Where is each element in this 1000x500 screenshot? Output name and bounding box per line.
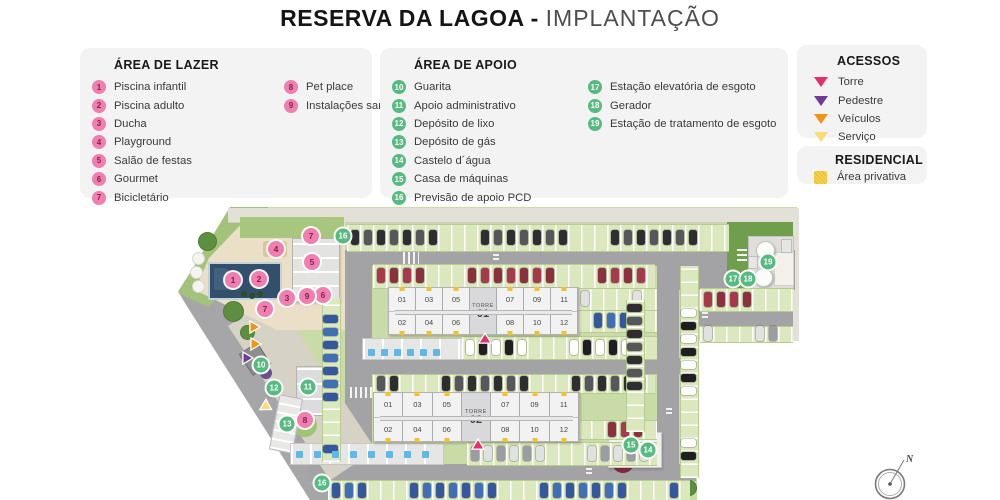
legend-item: 7Bicicletário [92, 188, 222, 206]
legend-item-number: 11 [392, 99, 406, 113]
legend-item-label: Bicicletário [114, 192, 169, 204]
car [650, 230, 658, 245]
car [540, 483, 548, 498]
palm-tree [249, 293, 255, 299]
legend-residencial-items: Área privativa [814, 168, 924, 186]
car [594, 313, 602, 328]
map-marker-11: 11 [301, 380, 316, 395]
car [510, 446, 518, 461]
car [377, 230, 385, 245]
car [553, 483, 561, 498]
car [624, 230, 632, 245]
car [455, 376, 463, 391]
car [442, 376, 450, 391]
car [611, 230, 619, 245]
unit-door [415, 392, 420, 396]
unit-door [386, 438, 391, 442]
car [520, 268, 528, 283]
legend-item-number: 9 [284, 99, 298, 113]
car [416, 268, 424, 283]
legend-card-residencial: RESIDENCIAL Área privativa [797, 146, 927, 184]
car [323, 380, 338, 388]
legend-item-label: Guarita [414, 81, 451, 93]
car [364, 230, 372, 245]
car [583, 340, 591, 355]
pcd-parking-mark [368, 451, 375, 458]
tower-unit: 05 [443, 288, 469, 312]
legend-item: 12Depósito de lixo [392, 115, 582, 133]
unit-door [427, 331, 432, 335]
car [624, 268, 632, 283]
crosswalk [403, 251, 419, 264]
car [536, 446, 544, 461]
unit-door [508, 287, 513, 291]
legend-title-lazer: ÁREA DE LAZER [114, 58, 219, 72]
parking-row [578, 420, 657, 440]
legend-item-number: 3 [92, 117, 106, 131]
map-marker-6: 6 [315, 287, 331, 303]
pcd-parking-mark [314, 451, 321, 458]
legend-item-label: Piscina infantil [114, 81, 186, 93]
parking-row [328, 480, 690, 500]
legend-item-label: Pet place [306, 81, 353, 93]
pcd-parking-mark [350, 451, 357, 458]
pedestre-arrow-icon [814, 96, 828, 106]
car [488, 483, 496, 498]
unit-door [532, 392, 537, 396]
pcd-parking-mark [296, 451, 303, 458]
unit-door [535, 287, 540, 291]
pcd-parking-mark [394, 349, 401, 356]
tower-unit: 07 [497, 288, 523, 312]
unit-door [400, 331, 405, 335]
servico-arrow-icon [814, 132, 828, 142]
pcd-parking-mark [422, 451, 429, 458]
unit-door [400, 287, 405, 291]
legend-access-item: Torre [814, 73, 924, 91]
unit-door [427, 287, 432, 291]
treatment-building [774, 252, 794, 286]
car [507, 376, 515, 391]
tree [223, 301, 244, 322]
legend-card-acessos: ACESSOS TorrePedestreVeículosServiço [797, 45, 927, 138]
legend-apoio-column-1: 10Guarita11Apoio administrativo12Depósit… [392, 78, 582, 207]
car [572, 376, 580, 391]
legend-item: 4Playground [92, 133, 222, 151]
map-marker-14: 14 [641, 443, 656, 458]
legend-access-label: Serviço [838, 131, 876, 143]
legend-item-label: Estação de tratamento de esgoto [610, 118, 776, 130]
legend-item-number: 17 [588, 80, 602, 94]
car [449, 483, 457, 498]
unit-door [454, 287, 459, 291]
car [717, 292, 725, 307]
car [351, 230, 359, 245]
legend-item-number: 15 [392, 172, 406, 186]
map-marker-7: 7 [257, 301, 273, 317]
legend-item-number: 2 [92, 99, 106, 113]
car [756, 326, 764, 341]
car [627, 369, 642, 377]
legend-item-number: 16 [392, 191, 406, 205]
car [484, 446, 492, 461]
unit-door [532, 438, 537, 442]
car [332, 483, 340, 498]
road-marking [493, 254, 499, 256]
car [533, 230, 541, 245]
car [681, 322, 696, 330]
road-marking [702, 312, 708, 314]
car [614, 446, 622, 461]
legend-item: 2Piscina adulto [92, 96, 222, 114]
legend-access-label: Veículos [838, 113, 881, 125]
map-marker-18: 18 [741, 272, 756, 287]
generator-box [748, 256, 758, 269]
legend-item-label: Playground [114, 136, 171, 148]
car [663, 230, 671, 245]
legend-access-item: Serviço [814, 128, 924, 146]
tower-unit: 01 [389, 288, 415, 312]
svg-text:N: N [905, 454, 914, 465]
legend-item: 18Gerador [588, 96, 788, 114]
unit-door [535, 331, 540, 335]
legend-item-label: Estação elevatória de esgoto [610, 81, 756, 93]
unit-door [562, 287, 567, 291]
legend-item: 6Gourmet [92, 170, 222, 188]
car [416, 230, 424, 245]
legend-item: 16Previsão de apoio PCD [392, 188, 582, 206]
map-marker-13: 13 [280, 417, 295, 432]
car [681, 387, 696, 395]
car [481, 376, 489, 391]
car [468, 268, 476, 283]
car [475, 483, 483, 498]
car [429, 230, 437, 245]
palm-tree [257, 291, 263, 297]
leisure-lawn [240, 217, 344, 238]
unit-door [386, 392, 391, 396]
plan-type: IMPLANTAÇÃO [546, 5, 720, 31]
legend-item: 17Estação elevatória de esgoto [588, 78, 788, 96]
car [566, 483, 574, 498]
car [546, 268, 554, 283]
map-marker-8: 8 [297, 412, 313, 428]
car [323, 315, 338, 323]
legend-item-number: 19 [588, 117, 602, 131]
car [323, 328, 338, 336]
legend-item-label: Gerador [610, 100, 651, 112]
car [570, 340, 578, 355]
car [581, 291, 589, 306]
map-marker-1: 1 [225, 272, 241, 288]
legend-item-number: 5 [92, 154, 106, 168]
car [637, 268, 645, 283]
map-marker-7: 7 [303, 228, 319, 244]
car [481, 268, 489, 283]
legend-card-apoio: ÁREA DE APOIO 10Guarita11Apoio administr… [380, 48, 788, 198]
legend-access-label: Pedestre [838, 95, 883, 107]
map-marker-3: 3 [279, 290, 295, 306]
project-name: RESERVA DA LAGOA - [280, 5, 546, 31]
legend-residencial-label: Área privativa [837, 171, 906, 183]
unit-door [508, 331, 513, 335]
car [507, 268, 515, 283]
pcd-parking-mark [407, 349, 414, 356]
parking-row [577, 288, 657, 311]
car [627, 304, 642, 312]
map-marker-16: 16 [336, 229, 351, 244]
legend-item-number: 6 [92, 172, 106, 186]
car [585, 376, 593, 391]
car [533, 268, 541, 283]
car [462, 483, 470, 498]
unit-door [444, 438, 449, 442]
unit-door [561, 392, 566, 396]
tree [198, 232, 217, 251]
car [436, 483, 444, 498]
car [494, 268, 502, 283]
car [481, 230, 489, 245]
map-marker-10: 10 [254, 358, 269, 373]
car [627, 356, 642, 364]
compass-north-icon: N [866, 450, 928, 500]
map-marker-9: 9 [299, 288, 315, 304]
car [518, 340, 526, 355]
car [627, 382, 642, 390]
car [627, 317, 642, 325]
legend-access-item: Veículos [814, 110, 924, 128]
legend-item: 10Guarita [392, 78, 582, 96]
map-marker-2: 2 [251, 271, 267, 287]
torre-arrow-icon [814, 77, 828, 87]
map-marker-15: 15 [624, 438, 639, 453]
legend-item-number: 7 [92, 191, 106, 205]
legend-lazer-column-1: 1Piscina infantil2Piscina adulto3Ducha4P… [92, 78, 222, 207]
car [611, 376, 619, 391]
car [468, 376, 476, 391]
legend-item-number: 13 [392, 135, 406, 149]
unit-door [562, 331, 567, 335]
tower-unit: 11 [550, 393, 578, 418]
legend-item-number: 8 [284, 80, 298, 94]
legend-item-label: Gourmet [114, 173, 158, 185]
legend-item: 19Estação de tratamento de esgoto [588, 115, 788, 133]
car [466, 340, 474, 355]
legend-residencial-item: Área privativa [814, 168, 924, 186]
tower-unit: 01 [374, 393, 402, 418]
page-title: RESERVA DA LAGOA - IMPLANTAÇÃO [0, 5, 1000, 32]
legend-item-label: Depósito de gás [414, 136, 496, 148]
legend-item-number: 4 [92, 135, 106, 149]
palm-tree [241, 291, 247, 297]
car [505, 340, 513, 355]
road-marking [586, 468, 592, 470]
unit-door [503, 392, 508, 396]
car [494, 230, 502, 245]
pcd-parking-mark [386, 451, 393, 458]
car [681, 374, 696, 382]
legend-acessos-items: TorrePedestreVeículosServiço [814, 73, 924, 147]
car [627, 330, 642, 338]
car [520, 376, 528, 391]
car [596, 340, 604, 355]
pergola-umbrella [190, 266, 203, 279]
road-marking [666, 408, 672, 410]
car [579, 483, 587, 498]
legend-item-label: Depósito de lixo [414, 118, 494, 130]
car [323, 393, 338, 401]
car [681, 452, 696, 460]
car [730, 292, 738, 307]
legend-title-residencial: RESIDENCIAL [835, 153, 923, 167]
car [743, 292, 751, 307]
legend-item: 5Salão de festas [92, 152, 222, 170]
legend-item-label: Castelo d´água [414, 155, 491, 167]
parking-row [700, 326, 793, 343]
car [492, 340, 500, 355]
legend-item: 11Apoio administrativo [392, 96, 582, 114]
pcd-parking-mark [332, 451, 339, 458]
tower-corridor [380, 416, 573, 421]
car [601, 446, 609, 461]
unit-door [454, 331, 459, 335]
legend-item: 13Depósito de gás [392, 133, 582, 151]
car [403, 268, 411, 283]
car [377, 376, 385, 391]
tower-unit: 11 [551, 288, 577, 312]
unit-door [561, 438, 566, 442]
legend-item-number: 12 [392, 117, 406, 131]
car [681, 348, 696, 356]
veiculos-access-arrow-icon [248, 320, 266, 334]
car [681, 439, 696, 447]
car [323, 341, 338, 349]
legend-title-apoio: ÁREA DE APOIO [414, 58, 517, 72]
car [520, 230, 528, 245]
equipment-box [781, 239, 792, 253]
car [607, 313, 615, 328]
car [559, 230, 567, 245]
car [670, 483, 678, 498]
legend-item: 14Castelo d´água [392, 152, 582, 170]
car [390, 268, 398, 283]
car [611, 268, 619, 283]
car [769, 326, 777, 341]
tower-unit: 03 [416, 288, 442, 312]
car [598, 376, 606, 391]
pcd-parking-mark [433, 349, 440, 356]
legend-item-label: Apoio administrativo [414, 100, 516, 112]
car [588, 446, 596, 461]
car [523, 446, 531, 461]
car [598, 268, 606, 283]
tower-unit: 03 [403, 393, 431, 418]
legend-item-label: Salão de festas [114, 155, 192, 167]
legend-item-number: 1 [92, 80, 106, 94]
car [403, 230, 411, 245]
tower-unit: 07 [491, 393, 519, 418]
car [627, 343, 642, 351]
car [390, 230, 398, 245]
pergola-umbrella [192, 280, 205, 293]
pcd-parking-mark [404, 451, 411, 458]
map-marker-19: 19 [761, 255, 776, 270]
legend-title-acessos: ACESSOS [837, 54, 900, 68]
car [637, 230, 645, 245]
car [609, 340, 617, 355]
car [377, 268, 385, 283]
parking-row [577, 310, 657, 333]
car [605, 483, 613, 498]
tower-unit: 05 [433, 393, 461, 418]
road-right-band [698, 310, 793, 326]
legend-item: 1Piscina infantil [92, 78, 222, 96]
legend-access-item: Pedestre [814, 91, 924, 109]
car [358, 483, 366, 498]
legend-access-label: Torre [838, 76, 864, 88]
legend-apoio-column-2: 17Estação elevatória de esgoto18Gerador1… [588, 78, 788, 133]
treatment-tank [754, 268, 773, 287]
private-area-swatch-icon [814, 171, 827, 184]
car [608, 422, 616, 437]
pcd-parking-mark [381, 349, 388, 356]
map-marker-12: 12 [267, 381, 282, 396]
crosswalk [350, 387, 372, 398]
car [507, 230, 515, 245]
map-marker-16: 16 [315, 476, 330, 491]
legend-item-label: Previsão de apoio PCD [414, 192, 531, 204]
car [681, 361, 696, 369]
car [423, 483, 431, 498]
car [681, 335, 696, 343]
tower-corridor [395, 310, 572, 315]
legend-item-number: 10 [392, 80, 406, 94]
car [592, 483, 600, 498]
car [410, 483, 418, 498]
legend-item-label: Ducha [114, 118, 147, 130]
car [546, 230, 554, 245]
car [681, 309, 696, 317]
veiculos-arrow-icon [814, 114, 828, 124]
crosswalk [737, 247, 747, 261]
car [494, 376, 502, 391]
legend-card-lazer: ÁREA DE LAZER 1Piscina infantil2Piscina … [80, 48, 372, 198]
car [618, 483, 626, 498]
unit-door [415, 438, 420, 442]
torre-access-arrow-icon [478, 327, 492, 345]
veiculos-access-arrow-icon [249, 337, 267, 351]
car [497, 446, 505, 461]
car [704, 326, 712, 341]
map-marker-4: 4 [268, 241, 284, 257]
legend-item-number: 18 [588, 99, 602, 113]
tower-unit: 09 [524, 288, 550, 312]
tower-unit: 09 [520, 393, 548, 418]
legend-item: 15Casa de máquinas [392, 170, 582, 188]
pergola-umbrella [192, 252, 205, 265]
unit-door [503, 438, 508, 442]
car [689, 230, 697, 245]
legend-item: 3Ducha [92, 115, 222, 133]
torre-access-arrow-icon [471, 433, 485, 451]
legend-item-label: Casa de máquinas [414, 173, 508, 185]
car [676, 230, 684, 245]
pcd-parking-mark [420, 349, 427, 356]
unit-door [444, 392, 449, 396]
map-marker-5: 5 [304, 254, 320, 270]
legend-item-label: Piscina adulto [114, 100, 184, 112]
car [390, 376, 398, 391]
